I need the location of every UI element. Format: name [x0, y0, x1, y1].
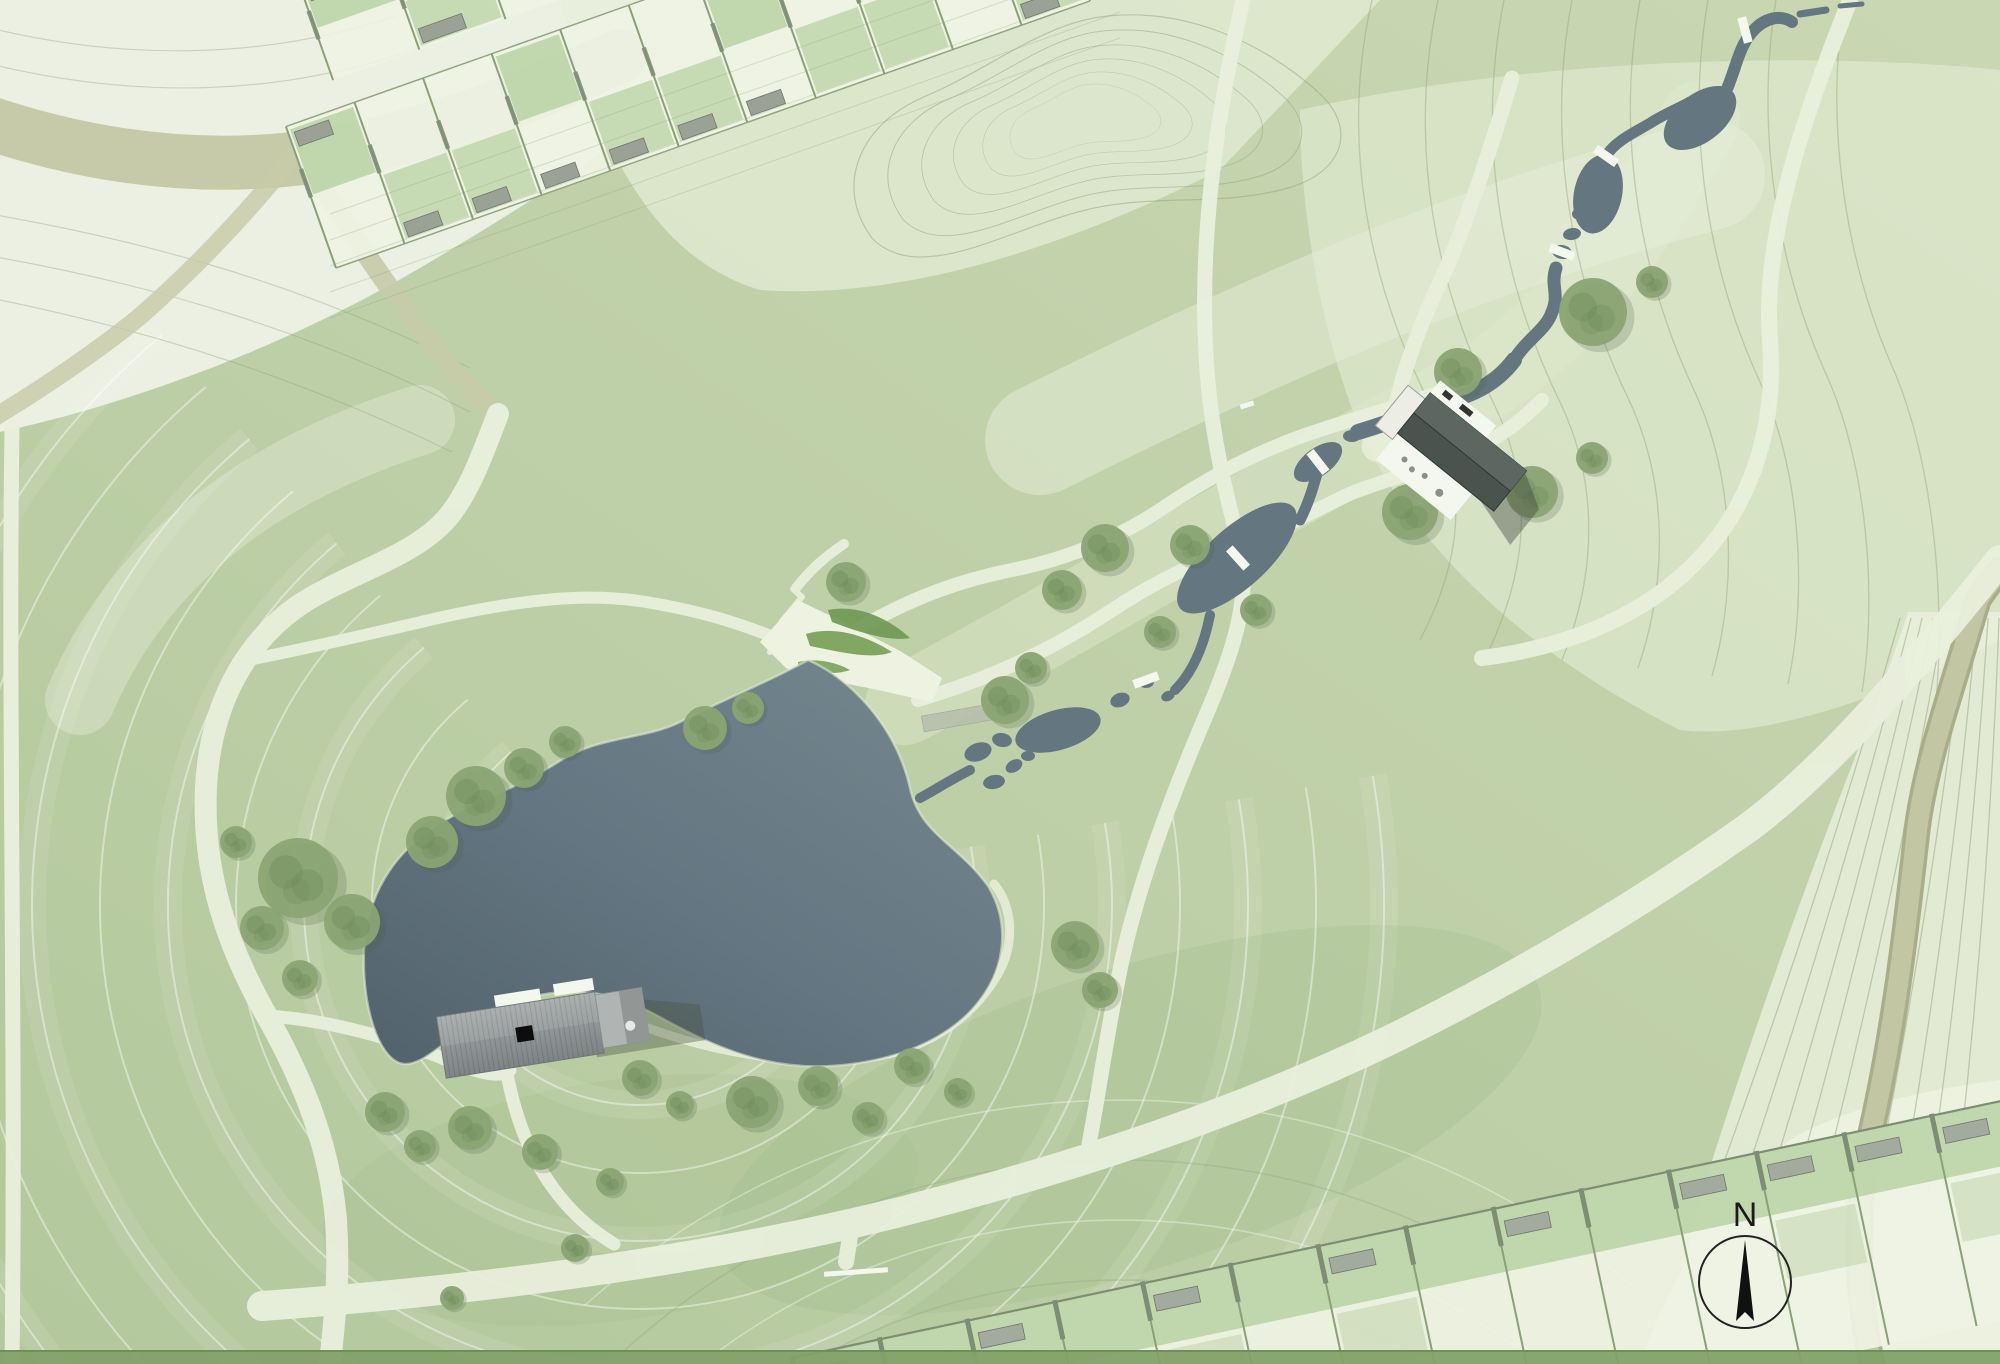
- tree-texture: [533, 1152, 545, 1164]
- tree-texture: [697, 728, 712, 743]
- tree-texture: [462, 1128, 477, 1143]
- tree-texture: [1096, 548, 1112, 564]
- tree-texture: [862, 1118, 873, 1129]
- tree-texture: [1580, 311, 1603, 334]
- tree-texture: [742, 708, 753, 719]
- tree-texture: [1646, 282, 1657, 293]
- masterplan-map: N: [0, 0, 2000, 1364]
- tree-texture: [1586, 458, 1597, 469]
- path-sweep-spur: [846, 1224, 852, 1262]
- tree-texture: [230, 842, 241, 853]
- tree-texture: [953, 1092, 963, 1102]
- tree-texture: [1054, 590, 1068, 604]
- tree-texture: [341, 921, 360, 940]
- tree-texture: [1182, 545, 1196, 559]
- tree-texture: [675, 1105, 685, 1115]
- tree-texture: [516, 768, 530, 782]
- tree-texture: [377, 1112, 391, 1126]
- tree-texture: [559, 742, 570, 753]
- masterplan-svg: N: [0, 0, 2000, 1364]
- tree-texture: [414, 1146, 425, 1157]
- tree-texture: [996, 700, 1012, 716]
- tree-texture: [605, 1182, 615, 1192]
- stream-tail: [1800, 10, 1826, 14]
- tree-texture: [1025, 668, 1036, 679]
- tree-texture: [422, 841, 440, 859]
- tree-texture: [1449, 372, 1465, 388]
- tree-texture: [1399, 511, 1418, 530]
- tree-texture: [810, 1086, 824, 1100]
- tree-texture: [1093, 990, 1105, 1002]
- hedge-strip: [0, 1350, 2000, 1364]
- boathouse-skylight: [515, 1025, 534, 1042]
- tree-texture: [1066, 945, 1082, 961]
- path-left-edge: [11, 428, 13, 1364]
- cascade-pools-part: [1021, 751, 1035, 761]
- stream-tail: [1840, 4, 1862, 6]
- tree-texture: [293, 978, 305, 990]
- tree-texture: [570, 1248, 580, 1258]
- tree-texture: [283, 877, 310, 904]
- tree-texture: [254, 928, 269, 943]
- tree-texture: [838, 582, 852, 596]
- tree-texture: [1250, 610, 1261, 621]
- tree-texture: [1154, 632, 1165, 643]
- tree-texture: [905, 1066, 917, 1078]
- tree-texture: [465, 795, 485, 815]
- hedge-strip-part: [0, 1350, 2000, 1364]
- compass-label: N: [1733, 1196, 1758, 1234]
- tree-texture: [633, 1078, 645, 1090]
- tree-texture: [447, 1298, 455, 1306]
- tree-texture: [742, 1101, 760, 1119]
